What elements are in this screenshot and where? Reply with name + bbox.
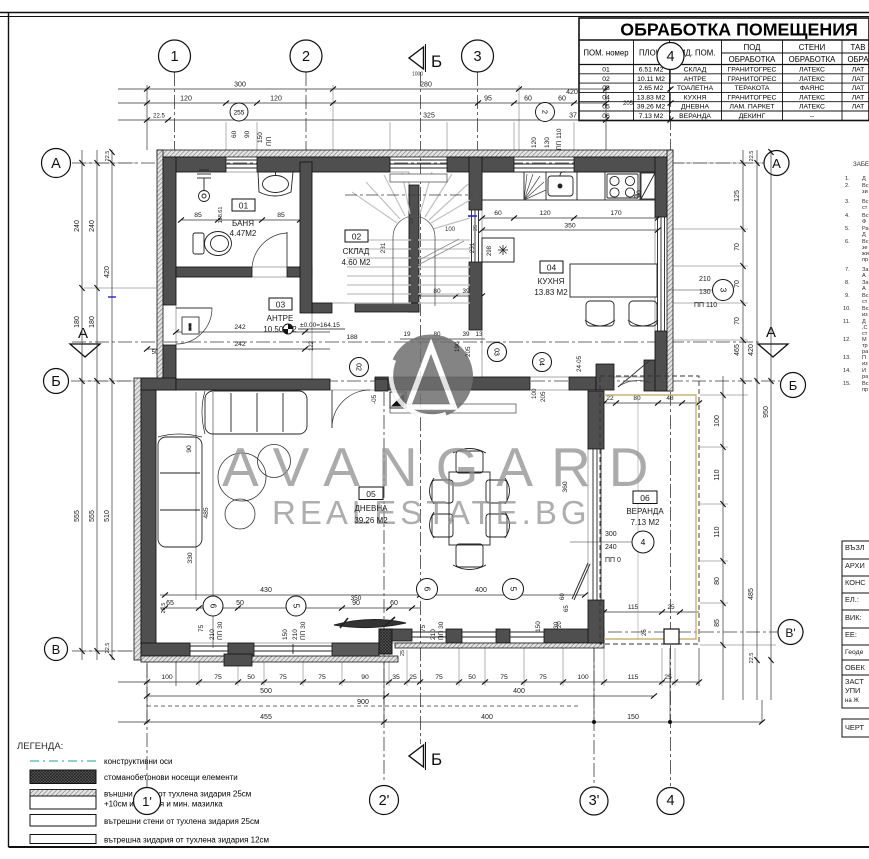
svg-text:510: 510	[104, 510, 111, 522]
svg-text:15.: 15.	[843, 381, 851, 387]
svg-text:7.13 М2: 7.13 М2	[631, 518, 660, 527]
svg-text:150: 150	[257, 132, 264, 143]
svg-text:6.: 6.	[845, 239, 850, 245]
svg-text:4: 4	[666, 49, 674, 65]
svg-text:300: 300	[234, 82, 246, 89]
svg-text:350: 350	[351, 595, 362, 602]
svg-text:ЛАТ: ЛАТ	[852, 76, 865, 83]
svg-text:1: 1	[170, 49, 178, 65]
svg-text:2': 2'	[379, 793, 390, 809]
svg-text:11.: 11.	[843, 319, 851, 325]
svg-text:110: 110	[714, 469, 721, 480]
svg-text:1': 1'	[142, 794, 152, 809]
svg-text:37: 37	[569, 113, 577, 120]
svg-text:400: 400	[481, 714, 493, 721]
svg-text:150: 150	[535, 621, 542, 632]
svg-text:22.5: 22.5	[749, 653, 755, 664]
svg-text:ЛАТ: ЛАТ	[852, 85, 865, 92]
svg-text:ЕЛ.:: ЕЛ.:	[845, 595, 859, 604]
svg-text:КУХНЯ: КУХНЯ	[684, 94, 707, 101]
svg-text:13.83 М2: 13.83 М2	[637, 94, 666, 101]
svg-text:БАНЯ: БАНЯ	[232, 219, 254, 228]
svg-text:Д: Д	[862, 176, 866, 182]
svg-text:2.65 М2: 2.65 М2	[639, 85, 664, 92]
svg-text:из: из	[862, 361, 868, 367]
svg-text:110: 110	[714, 526, 721, 537]
svg-text:6: 6	[423, 587, 432, 592]
svg-text:25: 25	[667, 604, 675, 611]
svg-text:СКЛАД: СКЛАД	[684, 67, 707, 74]
svg-text:100: 100	[531, 388, 538, 399]
svg-text:ПП 30: ПП 30	[300, 621, 307, 640]
svg-text:ЛАТЕКС: ЛАТЕКС	[799, 76, 825, 83]
svg-text:60: 60	[558, 96, 566, 103]
svg-text:ЧЕРТ: ЧЕРТ	[845, 723, 864, 732]
svg-text:ЕЕ:: ЕЕ:	[845, 630, 857, 639]
svg-text:4.: 4.	[845, 213, 850, 219]
svg-text:ГРАНИТОГРЕС: ГРАНИТОГРЕС	[728, 76, 777, 83]
svg-text:4: 4	[641, 537, 646, 547]
svg-text:ПОМ. номер: ПОМ. номер	[583, 49, 629, 58]
svg-text:4: 4	[666, 793, 674, 809]
svg-text:75: 75	[318, 674, 326, 681]
svg-text:420: 420	[104, 266, 111, 278]
svg-text:ФАЯНС: ФАЯНС	[800, 85, 824, 92]
svg-text:210: 210	[292, 629, 299, 640]
svg-text:75: 75	[500, 674, 508, 681]
svg-text:25: 25	[409, 674, 417, 681]
svg-text:СКЛАД: СКЛАД	[343, 247, 370, 256]
svg-text:90: 90	[361, 674, 369, 681]
svg-text:ЛАТ: ЛАТ	[852, 104, 865, 111]
svg-text:ДЕКИНГ: ДЕКИНГ	[739, 113, 766, 120]
svg-text:ПП 0: ПП 0	[605, 557, 621, 564]
svg-text:05: 05	[366, 489, 376, 499]
svg-text:95: 95	[484, 96, 492, 103]
svg-text:5: 5	[292, 604, 301, 609]
svg-text:205: 205	[623, 101, 634, 107]
svg-text:210: 210	[209, 629, 216, 640]
svg-text:ОБРАБОТКА ПОМЕЩЕНИЯ: ОБРАБОТКА ПОМЕЩЕНИЯ	[620, 20, 858, 40]
svg-text:90: 90	[186, 445, 193, 453]
svg-text:100: 100	[577, 674, 589, 681]
svg-text:80: 80	[714, 577, 721, 585]
svg-text:180: 180	[89, 316, 96, 328]
svg-text:ЗАБЕ: ЗАБЕ	[853, 161, 869, 168]
svg-text:455: 455	[260, 714, 272, 721]
svg-text:22.5: 22.5	[749, 151, 755, 162]
svg-text:ст: ст	[862, 299, 868, 305]
svg-text:Б: Б	[431, 52, 442, 71]
svg-text:В: В	[52, 642, 61, 657]
svg-text:210: 210	[430, 629, 437, 640]
svg-text:ОБЕК: ОБЕК	[845, 663, 866, 672]
svg-text:УПИ: УПИ	[845, 686, 860, 695]
svg-text:231: 231	[380, 242, 387, 253]
svg-text:70: 70	[734, 317, 741, 325]
svg-text:255: 255	[234, 110, 245, 117]
svg-text:ВЪЗЛ: ВЪЗЛ	[845, 543, 865, 552]
svg-text:ЛАТ: ЛАТ	[852, 67, 865, 74]
svg-text:13.: 13.	[843, 355, 851, 361]
svg-text:06: 06	[640, 493, 650, 503]
svg-text:Б: Б	[789, 378, 798, 393]
svg-text:120: 120	[531, 137, 538, 148]
svg-text:ПОД: ПОД	[744, 43, 761, 52]
svg-text:85: 85	[714, 619, 721, 627]
svg-text:210: 210	[699, 276, 711, 283]
svg-text:115: 115	[628, 674, 639, 681]
svg-text:ОБРА: ОБРА	[847, 55, 869, 64]
svg-text:2.: 2.	[845, 183, 850, 189]
svg-text:85: 85	[277, 212, 285, 219]
svg-text:03: 03	[493, 348, 500, 356]
svg-text:Б: Б	[431, 750, 442, 769]
svg-text:ПП 110: ПП 110	[556, 128, 563, 150]
svg-text:85: 85	[194, 212, 202, 219]
svg-text:22.5: 22.5	[161, 603, 167, 614]
svg-text:485: 485	[203, 507, 210, 519]
svg-text:115: 115	[628, 604, 639, 611]
svg-text:400: 400	[513, 688, 525, 695]
svg-text:А: А	[862, 286, 866, 292]
svg-text:170: 170	[610, 210, 622, 217]
svg-text:8.: 8.	[845, 280, 850, 286]
svg-text:АРХИ: АРХИ	[845, 561, 865, 570]
svg-text:REALESTATE.BG: REALESTATE.BG	[272, 494, 591, 531]
svg-text:Б: Б	[51, 374, 61, 390]
svg-text:60: 60	[560, 593, 566, 600]
svg-text:242: 242	[234, 324, 246, 331]
svg-text:22.5: 22.5	[153, 114, 165, 120]
svg-text:100: 100	[714, 415, 721, 427]
svg-text:298: 298	[487, 245, 493, 256]
svg-text:350: 350	[564, 223, 576, 230]
svg-text:188.61: 188.61	[218, 207, 224, 224]
svg-text:±0.00=164.15: ±0.00=164.15	[300, 322, 340, 329]
svg-text:25: 25	[400, 650, 406, 656]
svg-text:AVANGARD: AVANGARD	[222, 436, 667, 498]
svg-text:2: 2	[541, 110, 550, 114]
svg-text:--: --	[810, 113, 815, 120]
svg-text:03: 03	[276, 300, 286, 310]
svg-text:330: 330	[187, 552, 194, 564]
svg-text:СТЕНИ: СТЕНИ	[799, 43, 826, 52]
svg-text:430: 430	[260, 587, 272, 594]
svg-text:150: 150	[627, 714, 639, 721]
svg-text:485: 485	[748, 588, 755, 600]
svg-text:3: 3	[473, 49, 481, 65]
svg-text:10.: 10.	[843, 306, 851, 312]
svg-text:А: А	[772, 156, 781, 171]
svg-text:75: 75	[279, 674, 287, 681]
svg-text:50: 50	[247, 674, 255, 681]
svg-text:АНТРЕ: АНТРЕ	[684, 76, 707, 83]
svg-text:КОНС: КОНС	[845, 578, 866, 587]
svg-text:70: 70	[734, 243, 741, 251]
svg-text:1.: 1.	[845, 176, 850, 182]
svg-text:240: 240	[605, 544, 617, 551]
svg-text:ВИК:: ВИК:	[845, 613, 862, 622]
svg-text:Ф: Ф	[862, 219, 866, 225]
svg-text:04: 04	[547, 263, 557, 273]
svg-text:из: из	[862, 312, 868, 318]
svg-text:120: 120	[270, 96, 282, 103]
svg-text:100: 100	[161, 674, 173, 681]
svg-text:555: 555	[74, 510, 81, 522]
svg-text:100: 100	[445, 227, 456, 233]
svg-text:ДНЕВНА: ДНЕВНА	[681, 104, 709, 111]
svg-text:ТЕРАКОТА: ТЕРАКОТА	[735, 85, 770, 92]
svg-text:300: 300	[605, 531, 617, 538]
svg-text:25: 25	[473, 225, 479, 231]
svg-text:4.47М2: 4.47М2	[230, 229, 257, 238]
svg-text:ТОАЛЕТНА: ТОАЛЕТНА	[677, 85, 714, 92]
svg-text:ТАВ: ТАВ	[851, 43, 866, 52]
svg-text:60: 60	[524, 96, 532, 103]
svg-text:500: 500	[260, 688, 272, 695]
svg-text:420: 420	[566, 89, 578, 96]
svg-text:01: 01	[239, 201, 249, 211]
svg-text:външни стени от тухлена зидари: външни стени от тухлена зидария 25см	[104, 790, 251, 799]
svg-text:39: 39	[462, 331, 470, 338]
svg-text:75: 75	[539, 674, 547, 681]
svg-text:пр: пр	[862, 257, 868, 263]
svg-text:13: 13	[475, 331, 483, 338]
svg-text:65: 65	[564, 605, 570, 612]
svg-text:19: 19	[403, 331, 411, 338]
svg-text:7.13 М2: 7.13 М2	[639, 113, 664, 120]
svg-text:ПП: ПП	[266, 136, 273, 146]
svg-text:420: 420	[748, 344, 755, 356]
svg-text:50: 50	[468, 674, 476, 681]
svg-text:10.11 М2: 10.11 М2	[637, 76, 665, 83]
svg-text:ДНЕВНА: ДНЕВНА	[355, 504, 389, 513]
svg-text:240: 240	[74, 220, 81, 232]
svg-text:4.60 М2: 4.60 М2	[342, 258, 371, 267]
svg-text:ЛАТ: ЛАТ	[852, 94, 865, 101]
svg-text:39.26 М2: 39.26 М2	[354, 516, 388, 525]
svg-text:555: 555	[89, 510, 96, 522]
svg-text:900: 900	[357, 699, 369, 706]
svg-text:950: 950	[763, 406, 770, 418]
svg-text:02: 02	[602, 76, 610, 83]
svg-text:-05: -05	[371, 394, 378, 404]
svg-text:02: 02	[352, 232, 362, 242]
svg-text:ПП 110: ПП 110	[694, 302, 717, 309]
svg-text:Геоде: Геоде	[845, 649, 864, 656]
svg-text:22.5: 22.5	[105, 643, 111, 654]
svg-text:5: 5	[509, 587, 518, 592]
svg-text:60: 60	[494, 210, 502, 217]
svg-text:22.5: 22.5	[105, 151, 111, 162]
svg-text:13.83 М2: 13.83 М2	[534, 288, 568, 297]
svg-text:125: 125	[734, 190, 741, 202]
svg-text:КУХНЯ: КУХНЯ	[538, 277, 565, 286]
svg-text:14.: 14.	[843, 368, 851, 374]
svg-text:вътрешна зидария от тухлена зи: вътрешна зидария от тухлена зидария 12см	[104, 836, 269, 845]
svg-text:48: 48	[666, 395, 674, 402]
svg-text:ОБРАБОТКА: ОБРАБОТКА	[789, 55, 836, 64]
svg-text:ВЕРАНДА: ВЕРАНДА	[679, 113, 711, 120]
svg-text:кош: кош	[187, 323, 192, 330]
svg-text:12.: 12.	[843, 337, 851, 343]
svg-text:ЛАМ. ПАРКЕТ: ЛАМ. ПАРКЕТ	[729, 104, 774, 111]
svg-text:Д: Д	[862, 232, 866, 238]
svg-text:ВЕРАНДА: ВЕРАНДА	[626, 507, 664, 516]
svg-text:А: А	[862, 273, 866, 279]
svg-text:01: 01	[602, 67, 610, 74]
svg-text:5.: 5.	[845, 226, 850, 232]
svg-text:А: А	[51, 156, 61, 172]
svg-text:на Ж: на Ж	[845, 698, 859, 704]
svg-text:ст: ст	[862, 205, 868, 211]
svg-text:2: 2	[302, 49, 310, 65]
svg-text:ЛАТЕКС: ЛАТЕКС	[799, 67, 825, 74]
svg-text:04: 04	[538, 358, 545, 366]
svg-text:ЛАТЕКС: ЛАТЕКС	[799, 94, 825, 101]
svg-text:ГРАНИТОГРЕС: ГРАНИТОГРЕС	[728, 67, 777, 74]
svg-text:12: 12	[409, 218, 415, 224]
svg-text:1000: 1000	[412, 72, 423, 78]
svg-text:35: 35	[392, 674, 400, 681]
svg-text:70: 70	[734, 280, 741, 288]
svg-text:ЛЕГЕНДА:: ЛЕГЕНДА:	[17, 741, 63, 752]
svg-text:стоманобетонови носещи елемент: стоманобетонови носещи елементи	[104, 773, 238, 782]
svg-text:75: 75	[420, 624, 427, 632]
svg-text:+10см изолация и мин. мазилка: +10см изолация и мин. мазилка	[104, 800, 223, 809]
svg-text:6.51 М2: 6.51 М2	[639, 67, 664, 74]
svg-text:В': В'	[785, 626, 795, 640]
svg-text:280: 280	[420, 82, 432, 89]
svg-text:25: 25	[664, 674, 672, 681]
svg-text:20: 20	[557, 621, 563, 628]
svg-text:зи: зи	[862, 189, 868, 195]
svg-text:АНТРЕ: АНТРЕ	[267, 314, 294, 323]
svg-text:205: 205	[465, 346, 472, 357]
svg-text:7.: 7.	[845, 267, 850, 273]
svg-text:вътрешни стени от тухлена зида: вътрешни стени от тухлена зидария 25см	[104, 817, 259, 826]
svg-text:конструктивни оси: конструктивни оси	[104, 757, 172, 766]
svg-text:130: 130	[544, 137, 551, 148]
svg-text:90: 90	[244, 130, 251, 138]
svg-text:3': 3'	[589, 793, 600, 809]
svg-text:02: 02	[355, 363, 362, 371]
svg-text:240: 240	[89, 220, 96, 232]
svg-text:ГРАНИТОГРЕС: ГРАНИТОГРЕС	[728, 94, 777, 101]
svg-text:325: 325	[423, 113, 435, 120]
svg-text:3: 3	[719, 288, 728, 293]
svg-text:60: 60	[231, 130, 238, 138]
svg-text:22: 22	[606, 395, 614, 402]
svg-text:75: 75	[198, 624, 205, 632]
svg-text:ра: ра	[862, 374, 869, 380]
svg-text:39.26 М2: 39.26 М2	[637, 104, 666, 111]
svg-text:242: 242	[234, 341, 246, 348]
svg-text:3.: 3.	[845, 199, 850, 205]
svg-text:400: 400	[475, 587, 487, 594]
svg-text:пр: пр	[862, 387, 868, 393]
svg-text:190: 190	[454, 341, 461, 352]
svg-text:120: 120	[180, 96, 192, 103]
svg-text:122: 122	[309, 340, 315, 351]
svg-text:9.: 9.	[845, 293, 850, 299]
svg-text:ПП 30: ПП 30	[217, 621, 224, 640]
svg-text:465: 465	[734, 344, 741, 356]
svg-text:180: 180	[74, 316, 81, 328]
svg-text:75: 75	[214, 674, 222, 681]
svg-text:205: 205	[540, 391, 547, 402]
svg-text:6: 6	[209, 604, 218, 609]
svg-text:150: 150	[282, 629, 289, 640]
svg-text:188: 188	[346, 334, 358, 341]
svg-text:ОБРАБОТКА: ОБРАБОТКА	[729, 55, 776, 64]
svg-text:25: 25	[642, 629, 648, 636]
svg-text:75: 75	[435, 674, 443, 681]
svg-text:ЛАТЕКС: ЛАТЕКС	[799, 104, 825, 111]
svg-text:ЗАСТ: ЗАСТ	[845, 677, 864, 686]
svg-text:120: 120	[539, 210, 551, 217]
svg-text:80: 80	[633, 395, 641, 402]
svg-text:24·05: 24·05	[576, 355, 583, 372]
